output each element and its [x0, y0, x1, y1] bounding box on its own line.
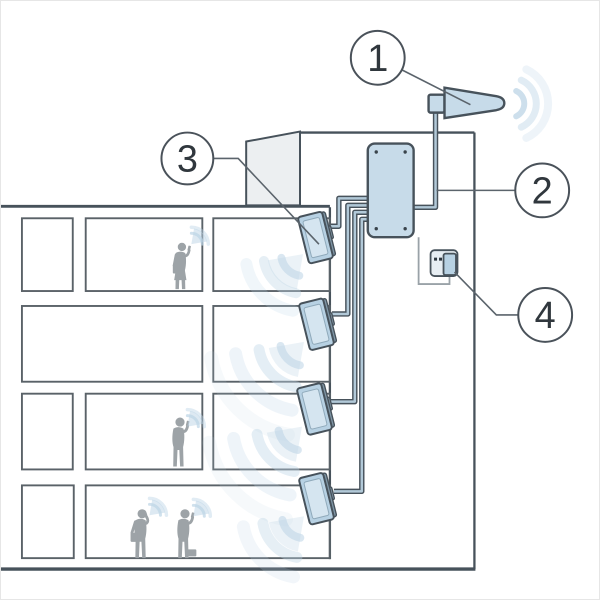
outlet-hole: [434, 258, 437, 261]
callout-number-3: 3: [177, 139, 198, 181]
room: [22, 485, 74, 558]
power-outlet: [431, 250, 458, 276]
indoor-signal-arcs: [209, 254, 304, 577]
signal-arcs-floor2: [211, 342, 304, 435]
person-floor3: [172, 418, 189, 467]
leader-line-4: [454, 272, 518, 315]
person-floor4-left: [131, 509, 148, 558]
person-floor4-right: [177, 509, 196, 558]
callout-number-4: 4: [535, 295, 556, 337]
indoor-antenna-floor3: [297, 382, 338, 436]
phone-signal-floor4-right: [193, 499, 210, 516]
indoor-antenna-floor2: [299, 297, 340, 351]
room: [22, 306, 202, 382]
person-floor1: [173, 243, 191, 289]
callout-3: 3: [161, 133, 213, 185]
outdoor-antenna: [429, 69, 549, 138]
antenna-mount: [429, 95, 445, 113]
callout-number-2: 2: [532, 171, 553, 213]
diagram-stage: 1 2 3 4: [0, 0, 600, 600]
rooftop-structure: [246, 132, 300, 206]
outdoor-signal-arcs: [516, 69, 548, 138]
repeater-unit: [368, 144, 414, 238]
signal-arcs-floor1: [246, 254, 303, 311]
outlet-plug: [444, 254, 456, 275]
room: [22, 394, 73, 470]
indoor-antenna-floor1: [298, 210, 339, 264]
repeater-system-diagram: 1 2 3 4: [1, 1, 599, 599]
phone-signal-floor4-left: [150, 498, 167, 515]
donor-coax-cable: [414, 111, 436, 208]
phone-signal-floor1: [191, 227, 208, 244]
callout-2: 2: [515, 163, 569, 217]
outlet-hole: [439, 258, 442, 261]
callout-4: 4: [518, 288, 572, 342]
indoor-antenna-floor4: [299, 471, 340, 525]
antenna-body: [445, 88, 505, 118]
coax-cable-floor4: [334, 219, 368, 491]
callout-number-1: 1: [367, 38, 388, 80]
signal-arcs-floor3: [209, 427, 302, 520]
callout-1: 1: [351, 31, 405, 85]
room: [22, 218, 73, 291]
